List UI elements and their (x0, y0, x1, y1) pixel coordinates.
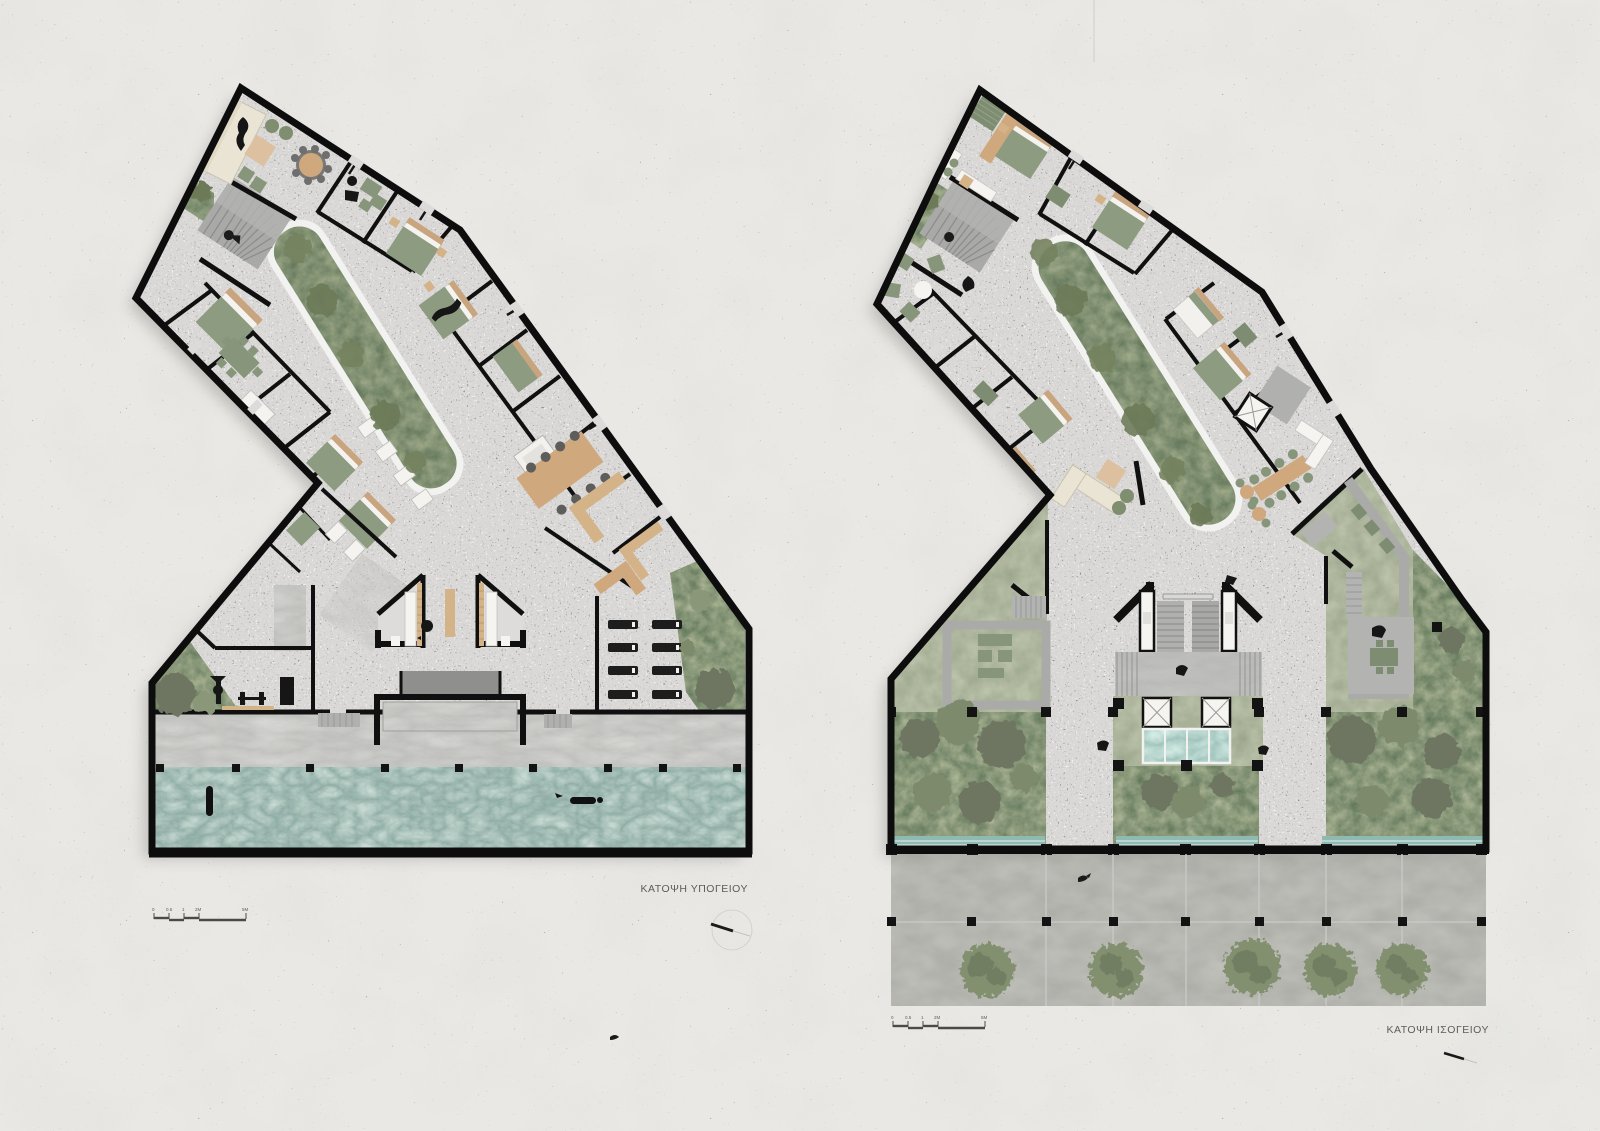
svg-text:ΚΑΤΟΨΗ ΙΣΟΓΕΙΟΥ: ΚΑΤΟΨΗ ΙΣΟΓΕΙΟΥ (1386, 1024, 1489, 1036)
svg-text:2M: 2M (195, 907, 202, 912)
svg-text:5M: 5M (242, 907, 249, 912)
svg-text:ΚΑΤΟΨΗ ΥΠΟΓΕΙΟΥ: ΚΑΤΟΨΗ ΥΠΟΓΕΙΟΥ (641, 883, 749, 895)
svg-text:0.5: 0.5 (166, 907, 173, 912)
svg-text:5M: 5M (981, 1015, 988, 1020)
svg-text:2M: 2M (934, 1015, 941, 1020)
svg-text:0.5: 0.5 (905, 1015, 912, 1020)
